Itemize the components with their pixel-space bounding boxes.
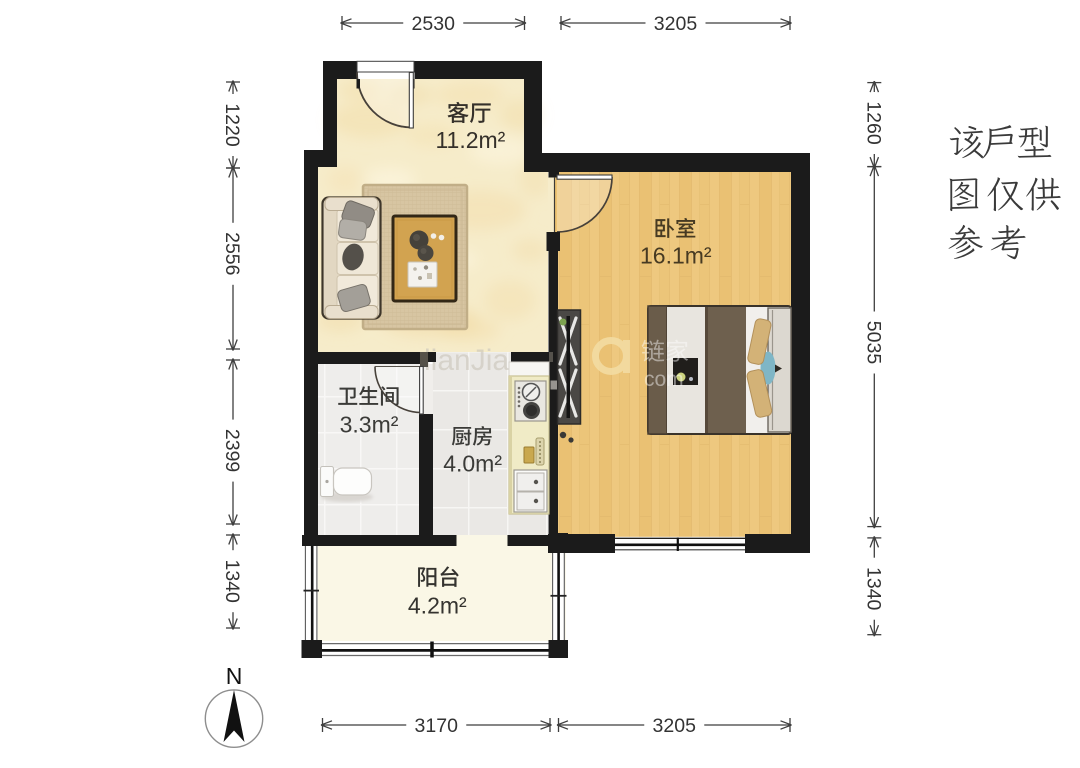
svg-text:4.0m²: 4.0m² — [443, 451, 502, 477]
svg-text:3170: 3170 — [415, 715, 459, 737]
svg-text:lianJia: lianJia — [424, 344, 509, 377]
svg-text:11.2m²: 11.2m² — [435, 127, 505, 153]
svg-text:1340: 1340 — [862, 567, 884, 611]
svg-text:2556: 2556 — [221, 232, 243, 275]
svg-text:5035: 5035 — [862, 321, 884, 365]
svg-text:3205: 3205 — [654, 13, 698, 35]
svg-text:4.2m²: 4.2m² — [408, 593, 467, 619]
svg-text:3205: 3205 — [653, 715, 697, 737]
svg-text:2530: 2530 — [412, 13, 456, 35]
svg-text:com: com — [644, 368, 684, 391]
svg-text:N: N — [226, 663, 243, 689]
svg-text:2399: 2399 — [221, 429, 243, 472]
svg-text:3.3m²: 3.3m² — [340, 412, 399, 438]
svg-text:1220: 1220 — [221, 103, 243, 147]
svg-text:1260: 1260 — [862, 101, 884, 145]
svg-text:1340: 1340 — [221, 560, 243, 604]
svg-text:16.1m²: 16.1m² — [640, 242, 712, 268]
